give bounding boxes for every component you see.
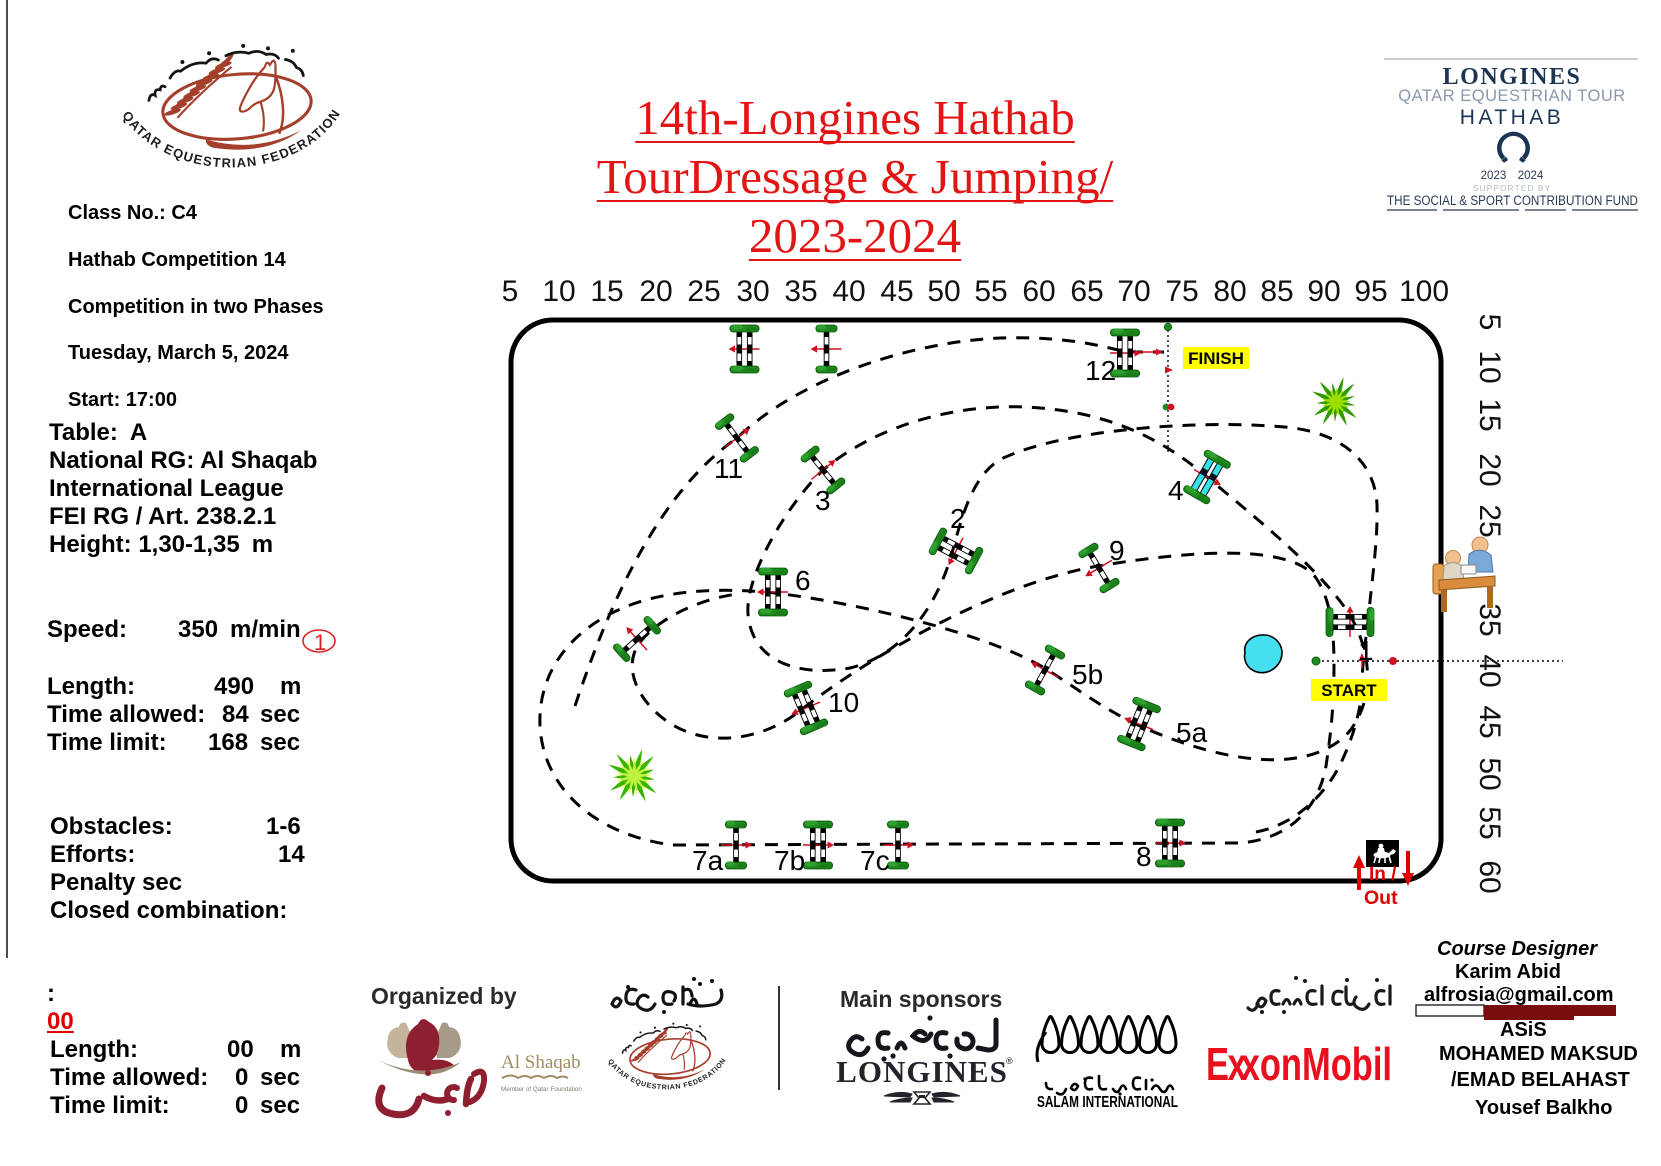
svg-text:5a: 5a: [1176, 717, 1208, 748]
svg-text:100: 100: [1399, 275, 1449, 308]
svg-text:90: 90: [1307, 275, 1340, 308]
svg-text:5b: 5b: [1072, 659, 1103, 690]
svg-text:1: 1: [314, 630, 326, 655]
svg-text:25: 25: [1473, 504, 1506, 537]
svg-text:12: 12: [1085, 355, 1116, 386]
svg-text:6: 6: [795, 565, 811, 596]
svg-text:START: START: [1321, 681, 1377, 700]
svg-text:40: 40: [832, 275, 865, 308]
svg-text:25: 25: [687, 275, 720, 308]
svg-text:9: 9: [1109, 535, 1125, 566]
svg-text:5: 5: [1473, 314, 1506, 331]
svg-text:11: 11: [714, 453, 743, 484]
svg-text:LONGINES: LONGINES: [836, 1054, 1008, 1089]
svg-text:FINISH: FINISH: [1188, 349, 1244, 368]
svg-text:15: 15: [590, 275, 623, 308]
svg-text:85: 85: [1260, 275, 1293, 308]
svg-text:SUPPORTED BY: SUPPORTED BY: [1473, 183, 1551, 193]
svg-text:QATAR EQUESTRIAN TOUR: QATAR EQUESTRIAN TOUR: [1398, 87, 1625, 105]
svg-text:In /: In /: [1369, 864, 1397, 885]
svg-text:55: 55: [974, 275, 1007, 308]
svg-text:20: 20: [1473, 453, 1506, 486]
svg-text:50: 50: [1473, 757, 1506, 790]
svg-text:2: 2: [950, 503, 966, 534]
svg-text:15: 15: [1473, 398, 1506, 431]
svg-text:45: 45: [880, 275, 913, 308]
svg-text:4: 4: [1168, 475, 1184, 506]
svg-text:10: 10: [828, 687, 859, 718]
svg-text:20: 20: [639, 275, 672, 308]
svg-text:95: 95: [1354, 275, 1387, 308]
svg-text:60: 60: [1022, 275, 1055, 308]
svg-text:8: 8: [1136, 841, 1152, 872]
svg-text:40: 40: [1473, 654, 1506, 687]
svg-text:70: 70: [1117, 275, 1150, 308]
svg-text:HATHAB: HATHAB: [1460, 106, 1565, 129]
svg-text:3: 3: [815, 485, 831, 516]
svg-text:5: 5: [502, 275, 519, 308]
svg-text:30: 30: [736, 275, 769, 308]
svg-text:7c: 7c: [860, 845, 890, 876]
svg-text:Member of Qatar Foundation: Member of Qatar Foundation: [501, 1086, 582, 1093]
svg-text:2023 2024: 2023 2024: [1481, 170, 1544, 182]
svg-text:35: 35: [1473, 603, 1506, 636]
svg-text:75: 75: [1165, 275, 1198, 308]
svg-text:1: 1: [1358, 635, 1374, 666]
svg-text:Out: Out: [1364, 887, 1398, 909]
svg-text:50: 50: [927, 275, 960, 308]
svg-text:65: 65: [1070, 275, 1103, 308]
svg-text:60: 60: [1473, 860, 1506, 893]
svg-text:®: ®: [1006, 1056, 1013, 1066]
svg-text:10: 10: [542, 275, 575, 308]
svg-text:7a: 7a: [692, 845, 724, 876]
svg-text:55: 55: [1473, 806, 1506, 839]
svg-text:ExxonMobil: ExxonMobil: [1206, 1038, 1392, 1090]
svg-text:80: 80: [1213, 275, 1246, 308]
svg-text:THE SOCIAL & SPORT CONTRIBUTIO: THE SOCIAL & SPORT CONTRIBUTION FUND: [1387, 193, 1638, 208]
svg-text:SALAM INTERNATIONAL: SALAM INTERNATIONAL: [1037, 1094, 1178, 1111]
svg-text:Al Shaqab: Al Shaqab: [501, 1052, 581, 1073]
svg-text:35: 35: [784, 275, 817, 308]
svg-text:10: 10: [1473, 350, 1506, 383]
svg-text:7b: 7b: [774, 845, 805, 876]
svg-text:45: 45: [1473, 705, 1506, 738]
